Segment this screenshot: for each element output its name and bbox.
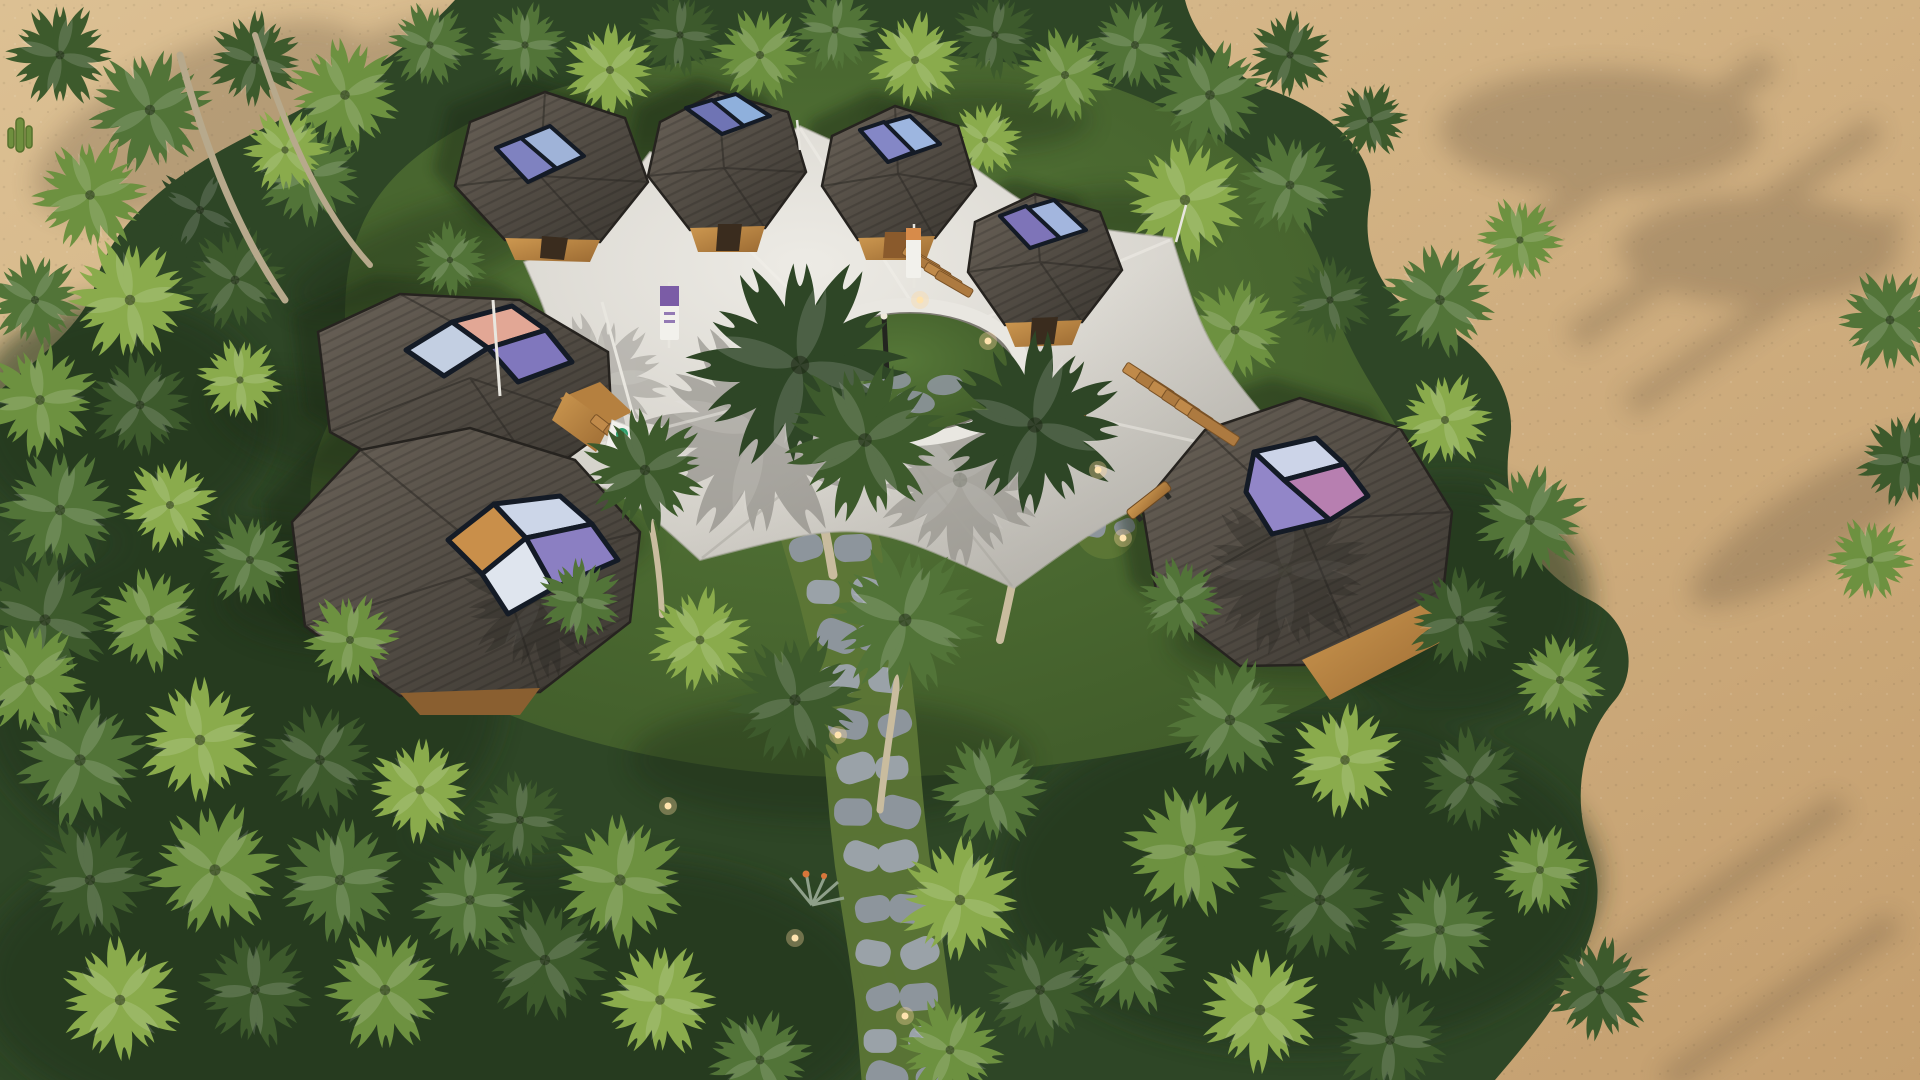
path-light [917, 297, 924, 304]
path-light [902, 1013, 909, 1020]
flagstone [833, 533, 872, 562]
flagstone [806, 580, 840, 605]
cabin-door [716, 224, 742, 251]
path-light [1095, 467, 1102, 474]
path-light [665, 803, 672, 810]
path-light [835, 732, 842, 739]
flagstone [864, 1029, 897, 1053]
aerial-render: Aerial 3D architectural rendering of an … [0, 0, 1920, 1080]
path-light [985, 338, 992, 345]
banner-purple [660, 282, 679, 348]
rendered-scene: Aerial 3D architectural rendering of an … [0, 0, 1920, 1080]
path-light [1120, 535, 1127, 542]
flagstone [834, 798, 872, 826]
path-light [792, 935, 799, 942]
cabin-door [540, 236, 568, 260]
flagstone [875, 755, 910, 781]
